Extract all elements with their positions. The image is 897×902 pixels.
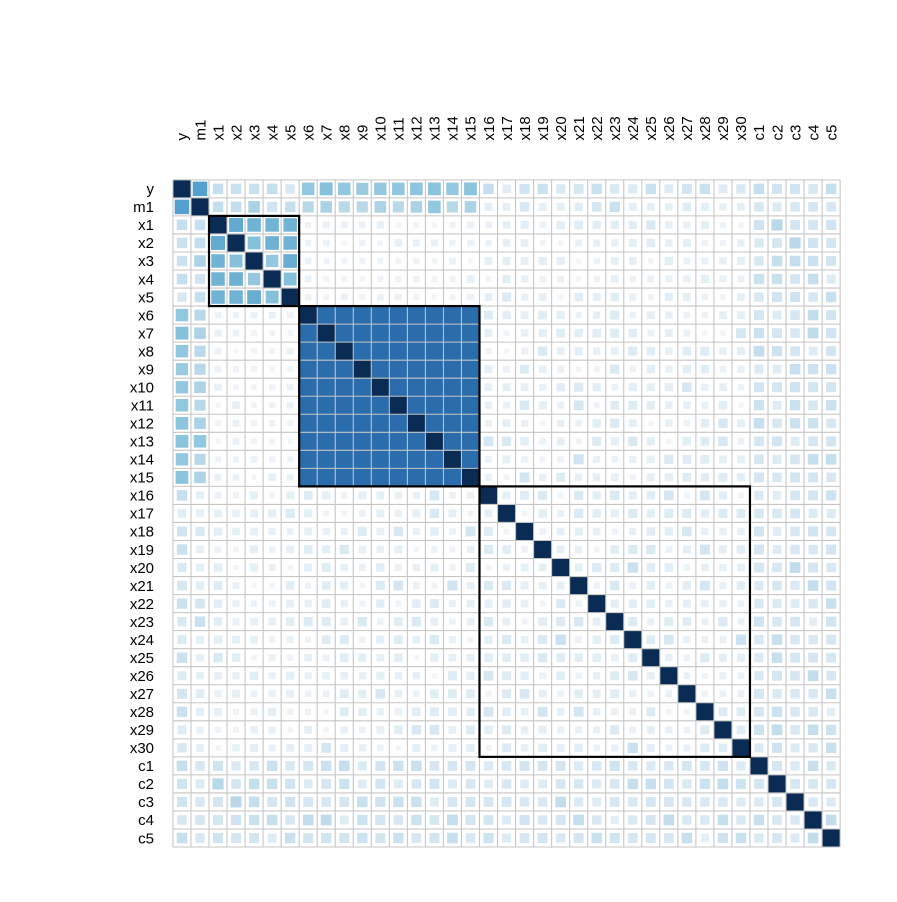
svg-text:x19: x19 xyxy=(130,542,154,559)
svg-text:x29: x29 xyxy=(130,722,154,739)
svg-text:x2: x2 xyxy=(138,235,154,252)
svg-text:m1: m1 xyxy=(133,199,154,216)
svg-text:x9: x9 xyxy=(138,361,154,378)
svg-text:x11: x11 xyxy=(131,398,154,415)
svg-text:x18: x18 xyxy=(130,524,154,541)
svg-text:x18: x18 xyxy=(517,116,534,140)
svg-text:x4: x4 xyxy=(138,271,154,288)
svg-text:x22: x22 xyxy=(589,116,606,140)
svg-text:x21: x21 xyxy=(130,578,154,595)
svg-text:x8: x8 xyxy=(138,343,154,360)
svg-text:x23: x23 xyxy=(607,116,624,140)
svg-text:x1: x1 xyxy=(138,217,154,234)
svg-text:x17: x17 xyxy=(130,506,154,523)
svg-text:x27: x27 xyxy=(130,686,154,703)
svg-text:x16: x16 xyxy=(130,488,154,505)
svg-text:y: y xyxy=(174,133,191,141)
svg-text:x20: x20 xyxy=(130,560,154,577)
svg-text:x26: x26 xyxy=(130,668,154,685)
svg-text:c3: c3 xyxy=(138,794,154,811)
svg-text:x21: x21 xyxy=(571,116,588,140)
svg-text:x27: x27 xyxy=(679,116,696,140)
svg-text:x1: x1 xyxy=(210,125,227,141)
svg-text:x14: x14 xyxy=(130,452,154,469)
svg-text:x3: x3 xyxy=(138,253,154,270)
svg-text:x9: x9 xyxy=(355,125,372,141)
svg-text:m1: m1 xyxy=(192,120,209,141)
svg-text:x17: x17 xyxy=(499,116,516,140)
svg-text:x23: x23 xyxy=(130,614,154,631)
svg-text:c1: c1 xyxy=(138,758,154,775)
svg-text:x10: x10 xyxy=(373,116,390,140)
svg-text:x12: x12 xyxy=(409,116,426,140)
svg-text:x5: x5 xyxy=(282,125,299,141)
svg-text:x29: x29 xyxy=(715,116,732,140)
svg-text:c2: c2 xyxy=(138,776,154,793)
svg-text:x25: x25 xyxy=(130,650,154,667)
svg-text:y: y xyxy=(147,181,155,198)
svg-text:x28: x28 xyxy=(130,704,154,721)
svg-text:x19: x19 xyxy=(535,116,552,140)
svg-text:c4: c4 xyxy=(138,812,154,829)
svg-text:x13: x13 xyxy=(130,434,154,451)
svg-text:c3: c3 xyxy=(787,125,804,141)
svg-text:x7: x7 xyxy=(138,325,154,342)
svg-text:x26: x26 xyxy=(661,116,678,140)
svg-text:c5: c5 xyxy=(138,830,154,847)
svg-text:c5: c5 xyxy=(823,125,840,141)
svg-text:c4: c4 xyxy=(805,125,822,141)
svg-text:x3: x3 xyxy=(246,125,263,141)
svg-text:c2: c2 xyxy=(769,125,786,141)
svg-text:x24: x24 xyxy=(625,116,642,140)
svg-text:x14: x14 xyxy=(445,116,462,140)
svg-text:x8: x8 xyxy=(337,125,354,141)
svg-text:x12: x12 xyxy=(130,416,154,433)
svg-text:x11: x11 xyxy=(391,117,408,140)
svg-text:x10: x10 xyxy=(130,379,154,396)
svg-text:x30: x30 xyxy=(733,116,750,140)
svg-text:c1: c1 xyxy=(751,125,768,141)
svg-text:x22: x22 xyxy=(130,596,154,613)
svg-text:x16: x16 xyxy=(481,116,498,140)
svg-text:x20: x20 xyxy=(553,116,570,140)
svg-text:x25: x25 xyxy=(643,116,660,140)
svg-text:x13: x13 xyxy=(427,116,444,140)
svg-text:x24: x24 xyxy=(130,632,154,649)
svg-text:x15: x15 xyxy=(130,470,154,487)
svg-text:x6: x6 xyxy=(300,125,317,141)
svg-text:x2: x2 xyxy=(228,125,245,141)
svg-text:x30: x30 xyxy=(130,740,154,757)
svg-text:x5: x5 xyxy=(138,289,154,306)
svg-text:x28: x28 xyxy=(697,116,714,140)
svg-text:x4: x4 xyxy=(264,125,281,141)
svg-text:x6: x6 xyxy=(138,307,154,324)
svg-text:x15: x15 xyxy=(463,116,480,140)
svg-text:x7: x7 xyxy=(318,125,335,141)
